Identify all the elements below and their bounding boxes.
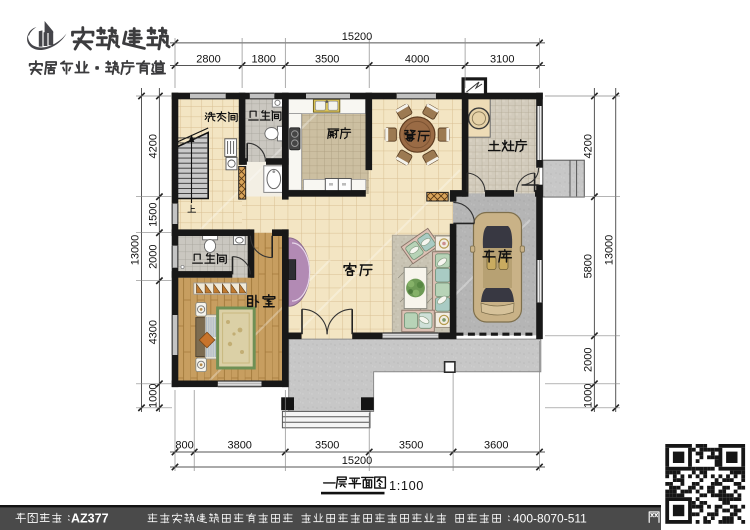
svg-text:3500: 3500 <box>315 54 339 66</box>
svg-text:2000: 2000 <box>147 244 159 268</box>
svg-text:3500: 3500 <box>399 440 423 452</box>
svg-text:4200: 4200 <box>582 134 594 158</box>
svg-text:13000: 13000 <box>130 235 142 266</box>
svg-text:2000: 2000 <box>582 348 594 372</box>
svg-text:15200: 15200 <box>342 455 373 467</box>
svg-text:13000: 13000 <box>604 235 616 266</box>
svg-text:1000: 1000 <box>582 384 594 408</box>
svg-text:3800: 3800 <box>227 440 251 452</box>
svg-text:15200: 15200 <box>342 31 373 43</box>
svg-text:3100: 3100 <box>490 54 514 66</box>
svg-text:4300: 4300 <box>147 320 159 344</box>
svg-text:400-8070-511: 400-8070-511 <box>513 512 587 526</box>
svg-text:4200: 4200 <box>147 134 159 158</box>
svg-text:1500: 1500 <box>147 202 159 226</box>
svg-text:3500: 3500 <box>315 440 339 452</box>
svg-text:1000: 1000 <box>147 384 159 408</box>
svg-text:1800: 1800 <box>251 54 275 66</box>
svg-text:AZ377: AZ377 <box>71 512 109 526</box>
svg-text:1:100: 1:100 <box>389 478 424 493</box>
svg-text:3600: 3600 <box>484 440 508 452</box>
svg-text:2800: 2800 <box>196 54 220 66</box>
svg-text:4000: 4000 <box>405 54 429 66</box>
svg-text:800: 800 <box>175 440 193 452</box>
svg-text:5800: 5800 <box>582 254 594 278</box>
